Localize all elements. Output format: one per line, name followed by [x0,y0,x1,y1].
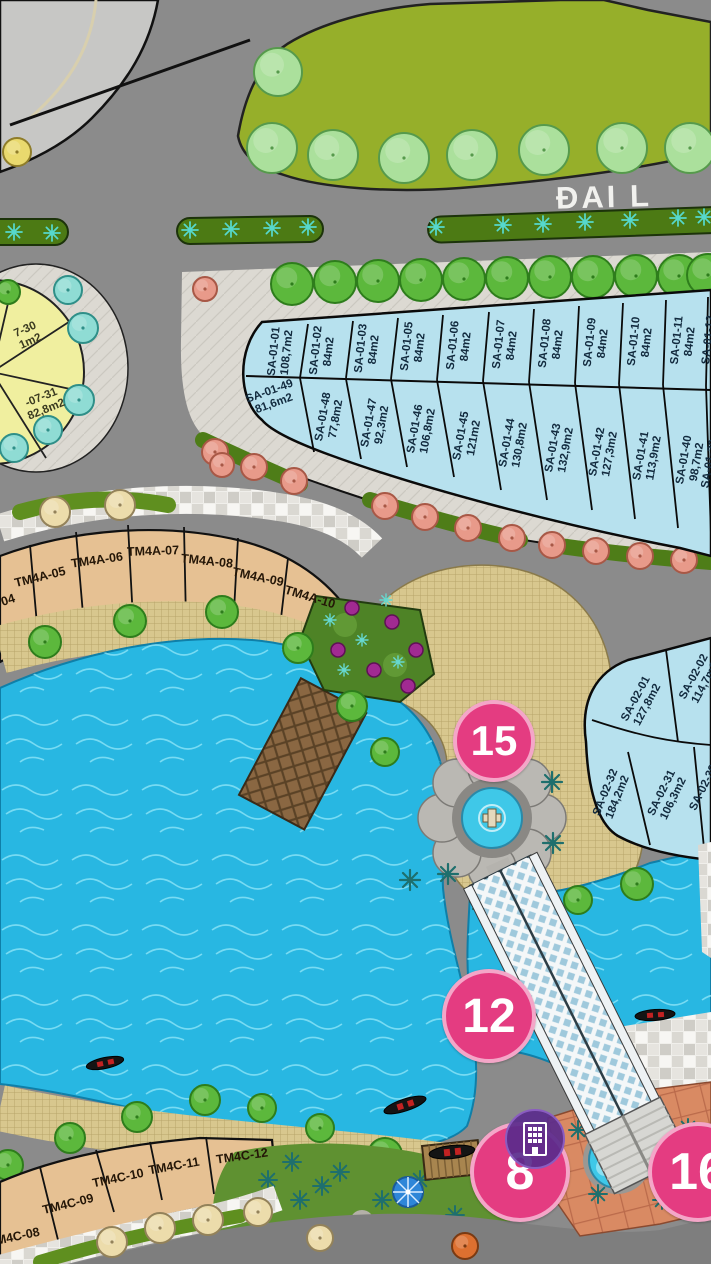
developer-watermark-logo [505,1109,565,1169]
boulevard-name: ĐAI L [556,175,711,216]
umbrella [393,1177,423,1207]
corner-tree [3,138,31,166]
site-plan: ĐAI L 15 12 8 16 SA-01-01108,7m2SA-01-02… [0,0,711,1264]
poi-marker-15[interactable]: 15 [453,700,535,782]
poi-marker-12[interactable]: 12 [442,969,536,1063]
pool-water [0,639,476,1147]
building-icon [518,1120,552,1158]
